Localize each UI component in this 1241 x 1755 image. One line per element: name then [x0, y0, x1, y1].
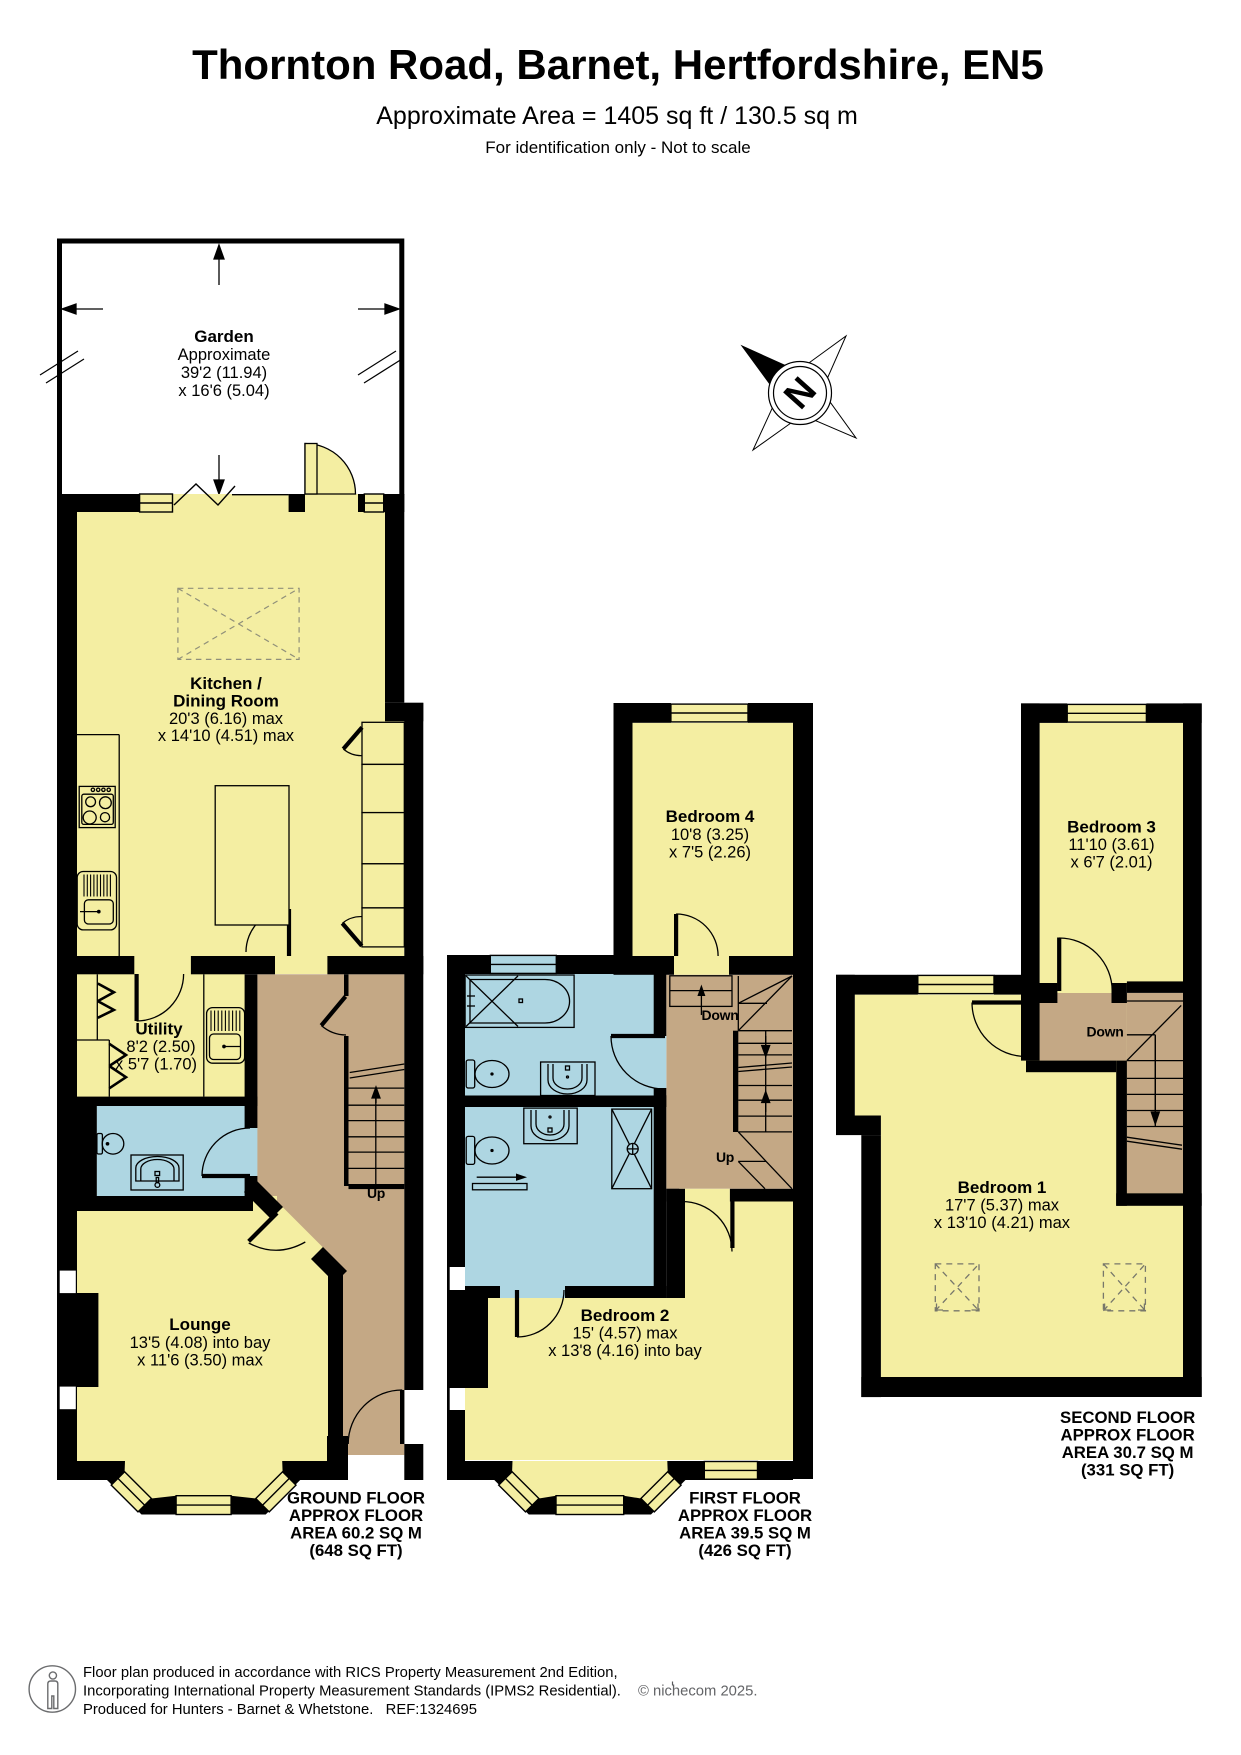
svg-text:Thornton Road, Barnet, Hertfor: Thornton Road, Barnet, Hertfordshire, EN… — [192, 41, 1044, 88]
svg-text:FIRST FLOOR: FIRST FLOOR — [689, 1489, 801, 1508]
svg-text:Up: Up — [716, 1149, 734, 1165]
svg-text:15' (4.57) max: 15' (4.57) max — [573, 1325, 679, 1343]
svg-text:Dining Room: Dining Room — [173, 691, 279, 710]
svg-text:x 16'6 (5.04): x 16'6 (5.04) — [178, 382, 269, 400]
svg-text:AREA 30.7 SQ M: AREA 30.7 SQ M — [1062, 1443, 1194, 1462]
svg-text:AREA 60.2 SQ M: AREA 60.2 SQ M — [290, 1524, 422, 1543]
svg-text:(426 SQ FT): (426 SQ FT) — [698, 1541, 791, 1560]
svg-text:Bedroom 3: Bedroom 3 — [1067, 818, 1156, 837]
svg-text:Garden: Garden — [194, 327, 254, 346]
svg-text:Bedroom 4: Bedroom 4 — [666, 807, 755, 826]
svg-text:x 5'7 (1.70): x 5'7 (1.70) — [115, 1055, 197, 1073]
svg-text:8'2 (2.50): 8'2 (2.50) — [126, 1038, 195, 1056]
svg-text:Kitchen /: Kitchen / — [190, 674, 262, 693]
svg-text:(331 SQ FT): (331 SQ FT) — [1081, 1461, 1174, 1480]
svg-text:39'2 (11.94): 39'2 (11.94) — [181, 364, 267, 382]
svg-text:Produced for Hunters - Barnet: Produced for Hunters - Barnet & Whetston… — [83, 1702, 477, 1718]
svg-text:Up: Up — [367, 1185, 385, 1201]
svg-text:GROUND FLOOR: GROUND FLOOR — [287, 1489, 425, 1508]
svg-text:13'5 (4.08) into bay: 13'5 (4.08) into bay — [130, 1334, 271, 1352]
svg-text:x 13'8 (4.16) into bay: x 13'8 (4.16) into bay — [548, 1342, 702, 1360]
svg-text:Lounge: Lounge — [169, 1315, 230, 1334]
svg-text:Down: Down — [1087, 1024, 1124, 1040]
svg-text:© nichecom 2025.: © nichecom 2025. — [638, 1684, 757, 1700]
svg-text:APPROX FLOOR: APPROX FLOOR — [289, 1506, 423, 1525]
svg-text:11'10 (3.61): 11'10 (3.61) — [1068, 836, 1154, 854]
svg-text:x 13'10 (4.21) max: x 13'10 (4.21) max — [934, 1214, 1071, 1232]
svg-text:SECOND FLOOR: SECOND FLOOR — [1060, 1408, 1195, 1427]
svg-text:(648 SQ FT): (648 SQ FT) — [309, 1541, 402, 1560]
svg-text:x 7'5 (2.26): x 7'5 (2.26) — [669, 844, 751, 862]
svg-text:x 6'7 (2.01): x 6'7 (2.01) — [1070, 854, 1152, 872]
svg-text:x 14'10 (4.51) max: x 14'10 (4.51) max — [158, 727, 295, 745]
svg-text:APPROX FLOOR: APPROX FLOOR — [1060, 1426, 1194, 1445]
svg-text:Bedroom 1: Bedroom 1 — [958, 1178, 1047, 1197]
svg-text:For identification only - Not: For identification only - Not to scale — [485, 138, 751, 157]
svg-text:Floor plan produced in accorda: Floor plan produced in accordance with R… — [83, 1665, 618, 1681]
svg-text:x 11'6 (3.50) max: x 11'6 (3.50) max — [137, 1352, 263, 1370]
svg-text:20'3 (6.16) max: 20'3 (6.16) max — [169, 710, 284, 728]
svg-text:Approximate Area = 1405 sq ft: Approximate Area = 1405 sq ft / 130.5 sq… — [376, 102, 858, 130]
svg-text:10'8 (3.25): 10'8 (3.25) — [671, 826, 749, 844]
svg-text:AREA 39.5 SQ M: AREA 39.5 SQ M — [679, 1524, 811, 1543]
svg-text:Down: Down — [702, 1007, 739, 1023]
svg-text:APPROX FLOOR: APPROX FLOOR — [678, 1506, 812, 1525]
svg-text:Bedroom 2: Bedroom 2 — [581, 1306, 670, 1325]
svg-text:Incorporating International Pr: Incorporating International Property Mea… — [83, 1684, 621, 1700]
svg-text:Approximate: Approximate — [178, 346, 271, 364]
svg-text:17'7 (5.37) max: 17'7 (5.37) max — [945, 1197, 1060, 1215]
svg-text:Utility: Utility — [135, 1020, 183, 1039]
